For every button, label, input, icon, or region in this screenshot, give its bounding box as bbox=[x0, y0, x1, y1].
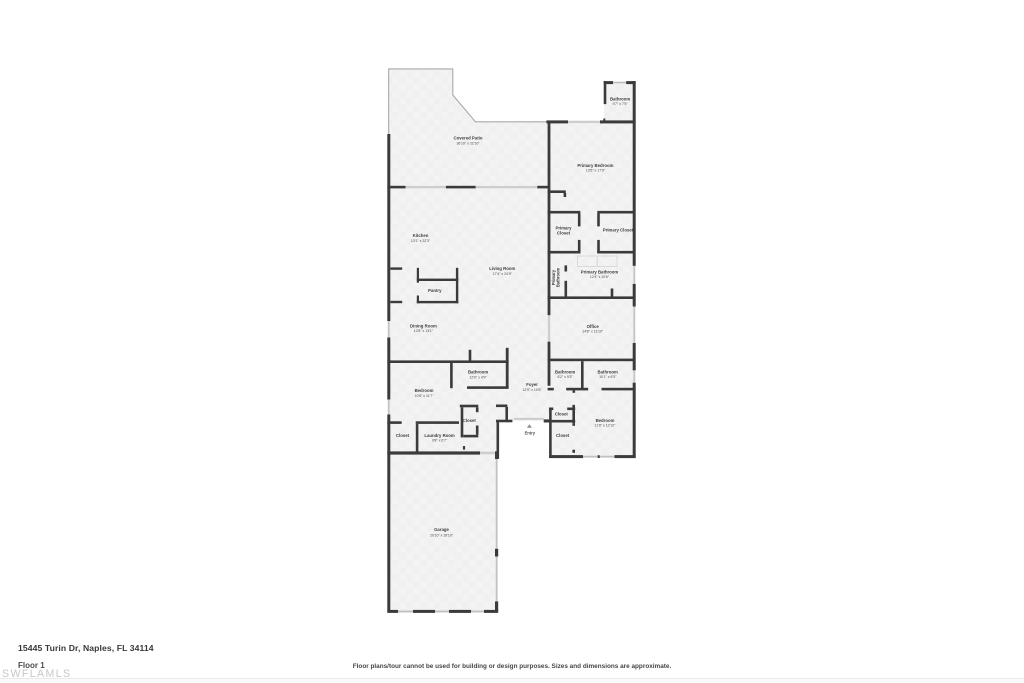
svg-text:17'4" x 24'9": 17'4" x 24'9" bbox=[493, 272, 513, 276]
svg-text:10'8" x 11'7": 10'8" x 11'7" bbox=[415, 394, 435, 398]
svg-text:9'8" x 6'7": 9'8" x 6'7" bbox=[432, 439, 448, 443]
svg-text:12'8" x 13'1": 12'8" x 13'1" bbox=[414, 329, 434, 333]
svg-text:Living Room: Living Room bbox=[489, 266, 515, 271]
svg-text:13'5" x 17'9": 13'5" x 17'9" bbox=[586, 169, 606, 173]
svg-text:Pantry: Pantry bbox=[428, 288, 442, 293]
svg-text:12'9" x 10'6": 12'9" x 10'6" bbox=[522, 388, 542, 392]
svg-text:11'8" x 12'10": 11'8" x 12'10" bbox=[595, 423, 617, 427]
svg-text:14'8" x 11'10": 14'8" x 11'10" bbox=[582, 330, 604, 334]
svg-text:Covered Patio: Covered Patio bbox=[454, 136, 483, 141]
svg-text:10'1" x 6'3": 10'1" x 6'3" bbox=[599, 375, 617, 379]
svg-text:9'7" x 7'5": 9'7" x 7'5" bbox=[612, 102, 628, 106]
svg-text:12'4" x 10'6": 12'4" x 10'6" bbox=[590, 275, 610, 279]
svg-text:Entry: Entry bbox=[525, 431, 536, 436]
svg-text:6'2" x 9'3": 6'2" x 9'3" bbox=[557, 375, 573, 379]
svg-text:12'6" x 4'9": 12'6" x 4'9" bbox=[469, 375, 487, 379]
svg-text:Foyer: Foyer bbox=[526, 382, 538, 387]
svg-text:Kitchen: Kitchen bbox=[413, 233, 429, 238]
svg-text:Primary Bedroom: Primary Bedroom bbox=[577, 163, 613, 168]
svg-text:Office: Office bbox=[587, 324, 600, 329]
svg-text:Bathroom: Bathroom bbox=[556, 267, 561, 287]
svg-text:20'10" x 28'10": 20'10" x 28'10" bbox=[430, 534, 454, 538]
svg-text:Laundry Room: Laundry Room bbox=[424, 433, 454, 438]
svg-text:Closet: Closet bbox=[463, 418, 477, 423]
svg-text:Bathroom: Bathroom bbox=[598, 370, 618, 375]
svg-text:Bedroom: Bedroom bbox=[596, 418, 615, 423]
svg-text:Closet: Closet bbox=[396, 433, 410, 438]
svg-text:Bathroom: Bathroom bbox=[610, 97, 630, 102]
svg-text:Dining Room: Dining Room bbox=[410, 324, 437, 329]
svg-text:Bedroom: Bedroom bbox=[415, 388, 434, 393]
svg-text:Closet: Closet bbox=[557, 231, 571, 236]
svg-text:Garage: Garage bbox=[434, 527, 449, 532]
svg-text:13'1" x 22'3": 13'1" x 22'3" bbox=[411, 239, 431, 243]
svg-text:Closet: Closet bbox=[556, 433, 570, 438]
svg-text:Bathroom: Bathroom bbox=[555, 369, 575, 374]
svg-text:Closet: Closet bbox=[555, 412, 569, 417]
svg-text:Primary Bathroom: Primary Bathroom bbox=[581, 270, 619, 275]
svg-text:36'10" x 22'10": 36'10" x 22'10" bbox=[456, 141, 480, 145]
svg-text:Primary Closet: Primary Closet bbox=[603, 227, 634, 232]
svg-text:Bathroom: Bathroom bbox=[468, 370, 488, 375]
